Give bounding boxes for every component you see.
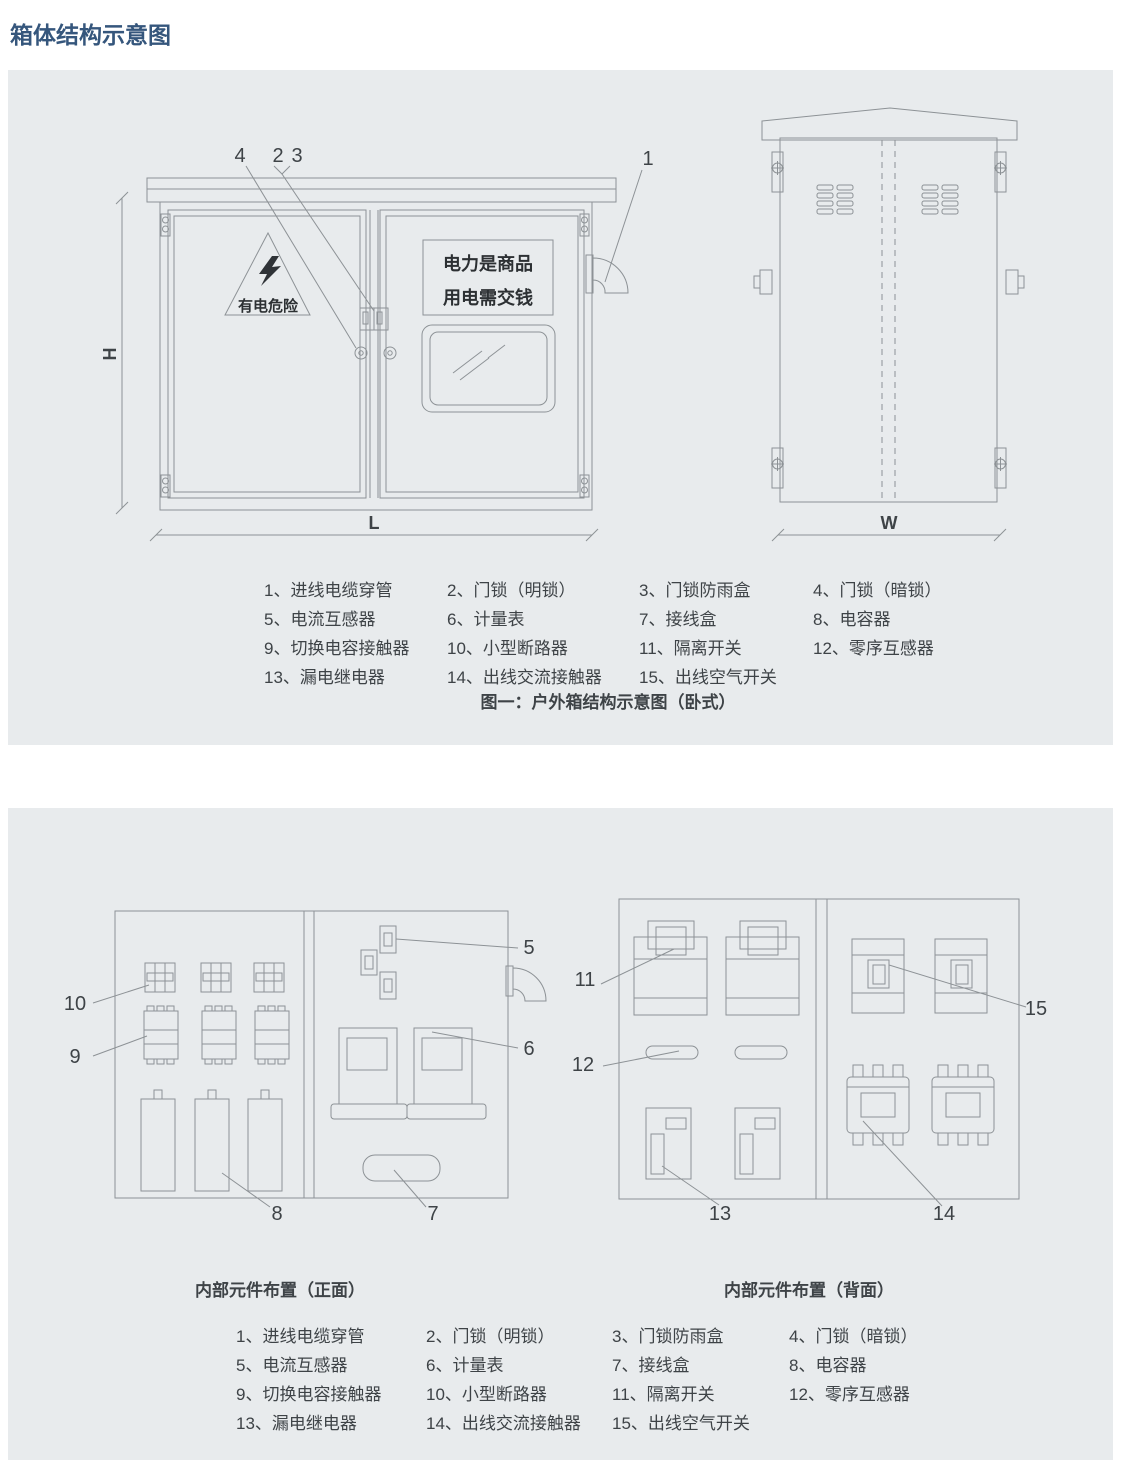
callout-15: 15 [1025, 998, 1047, 1020]
internal-back-view: 11 12 13 15 14 [572, 899, 1047, 1225]
cabinet-front-view: 有电危险 电力是商品 用电需交钱 [100, 145, 654, 541]
dimension-width: W [772, 513, 1006, 541]
cable-inlet-duct-front [506, 966, 546, 1001]
dim-h-label: H [100, 348, 120, 361]
callout-7: 7 [427, 1203, 438, 1225]
cabinet-structure-drawing: 有电危险 电力是商品 用电需交钱 [8, 70, 1113, 570]
left-door [168, 210, 366, 498]
energy-meters [331, 1028, 486, 1119]
legend-item: 9、切换电容接触器 [236, 1380, 426, 1409]
legend-item: 13、漏电继电器 [236, 1409, 426, 1438]
legend-item: 12、零序互感器 [789, 1380, 917, 1409]
warning-text: 有电危险 [238, 297, 299, 315]
door-lock-boxes [360, 308, 388, 330]
internal-layout-panel: 10 9 8 7 5 6 [8, 808, 1113, 1460]
legend-item: 1、进线电缆穿管 [236, 1322, 426, 1351]
back-enclosure [619, 899, 1019, 1199]
internal-back-label: 内部元件布置（背面） [724, 1276, 894, 1301]
legend-item: 3、门锁防雨盒 [612, 1322, 789, 1351]
legend-item: 2、门锁（明锁） [447, 576, 639, 605]
capacitors [141, 1090, 282, 1191]
callout-4: 4 [234, 145, 245, 167]
legend-item: 7、接线盒 [639, 605, 813, 634]
slogan-sign: 电力是商品 用电需交钱 [423, 240, 553, 315]
legend-item: 14、出线交流接触器 [426, 1409, 612, 1438]
dim-l-label: L [369, 513, 380, 533]
callout-14: 14 [933, 1203, 955, 1225]
legend-item: 8、电容器 [789, 1351, 917, 1380]
legend-item: 10、小型断路器 [447, 634, 639, 663]
outgoing-ac-contactors [847, 1065, 994, 1145]
callout-1: 1 [642, 148, 653, 170]
side-body [780, 138, 997, 502]
legend-item: 1、进线电缆穿管 [264, 576, 447, 605]
legend-item: 9、切换电容接触器 [264, 634, 447, 663]
callout-11: 11 [575, 969, 596, 991]
figure1-caption: 图一：户外箱结构示意图（卧式） [308, 688, 908, 713]
internal-front-label: 内部元件布置（正面） [195, 1276, 365, 1301]
callout-10: 10 [64, 993, 86, 1015]
parts-legend-bottom: 1、进线电缆穿管 2、门锁（明锁） 3、门锁防雨盒 4、门锁（暗锁） 5、电流互… [236, 1322, 917, 1438]
lightning-icon [259, 256, 281, 286]
danger-warning-triangle: 有电危险 [225, 233, 310, 315]
cabinet-body [160, 202, 592, 510]
zero-sequence-ct-slots [646, 1046, 787, 1059]
dim-w-label: W [881, 513, 898, 533]
legend-item: 5、电流互感器 [236, 1351, 426, 1380]
legend-item: 2、门锁（明锁） [426, 1322, 612, 1351]
vent-louvers [817, 185, 958, 214]
front-view-callouts: 4 2 3 1 [234, 145, 653, 348]
cabinet-side-view: W [754, 108, 1024, 541]
legend-item: 4、门锁（暗锁） [813, 576, 941, 605]
page-title: 箱体结构示意图 [10, 16, 171, 50]
dimension-height: H [100, 192, 128, 514]
legend-item: 8、电容器 [813, 605, 941, 634]
inspection-window [422, 325, 555, 412]
callout-6: 6 [523, 1038, 534, 1060]
outgoing-air-breakers [852, 939, 987, 1013]
current-transformers [361, 926, 396, 999]
dimension-length: L [150, 513, 598, 541]
callout-12: 12 [572, 1054, 594, 1076]
callout-8: 8 [271, 1203, 282, 1225]
side-roof [762, 108, 1017, 140]
sign-line2: 用电需交钱 [443, 287, 533, 308]
legend-item: 12、零序互感器 [813, 634, 941, 663]
junction-box [363, 1155, 440, 1181]
capacitor-contactors [144, 1006, 289, 1064]
callout-13: 13 [709, 1203, 731, 1225]
legend-item: 5、电流互感器 [264, 605, 447, 634]
internal-front-view: 10 9 8 7 5 6 [64, 911, 546, 1225]
side-latches [754, 270, 1024, 294]
sign-line1: 电力是商品 [443, 253, 533, 274]
legend-item: 3、门锁防雨盒 [639, 576, 813, 605]
callout-5: 5 [523, 937, 534, 959]
legend-item: 4、门锁（暗锁） [789, 1322, 917, 1351]
legend-item: 6、计量表 [426, 1351, 612, 1380]
legend-item: 10、小型断路器 [426, 1380, 612, 1409]
parts-legend-top: 1、进线电缆穿管 2、门锁（明锁） 3、门锁防雨盒 4、门锁（暗锁） 5、电流互… [264, 576, 941, 692]
front-internal-callouts: 10 9 8 7 5 6 [64, 937, 535, 1225]
callout-2: 2 [272, 145, 283, 167]
callout-9: 9 [69, 1046, 80, 1068]
side-hinge-straps [771, 152, 1007, 488]
cabinet-structure-panel: 有电危险 电力是商品 用电需交钱 [8, 70, 1113, 745]
legend-item: 11、隔离开关 [612, 1380, 789, 1409]
legend-item: 6、计量表 [447, 605, 639, 634]
internal-layout-drawing: 10 9 8 7 5 6 [8, 808, 1113, 1268]
legend-item: 7、接线盒 [612, 1351, 789, 1380]
front-enclosure [115, 911, 508, 1198]
legend-item: 15、出线空气开关 [612, 1409, 789, 1438]
isolator-switches [634, 921, 799, 1015]
cabinet-roof [147, 178, 616, 202]
door-lock-knobs [355, 347, 396, 359]
legend-item: 11、隔离开关 [639, 634, 813, 663]
callout-3: 3 [291, 145, 302, 167]
manual-page: 箱体结构示意图 [0, 0, 1123, 1469]
mini-circuit-breakers [145, 963, 284, 992]
